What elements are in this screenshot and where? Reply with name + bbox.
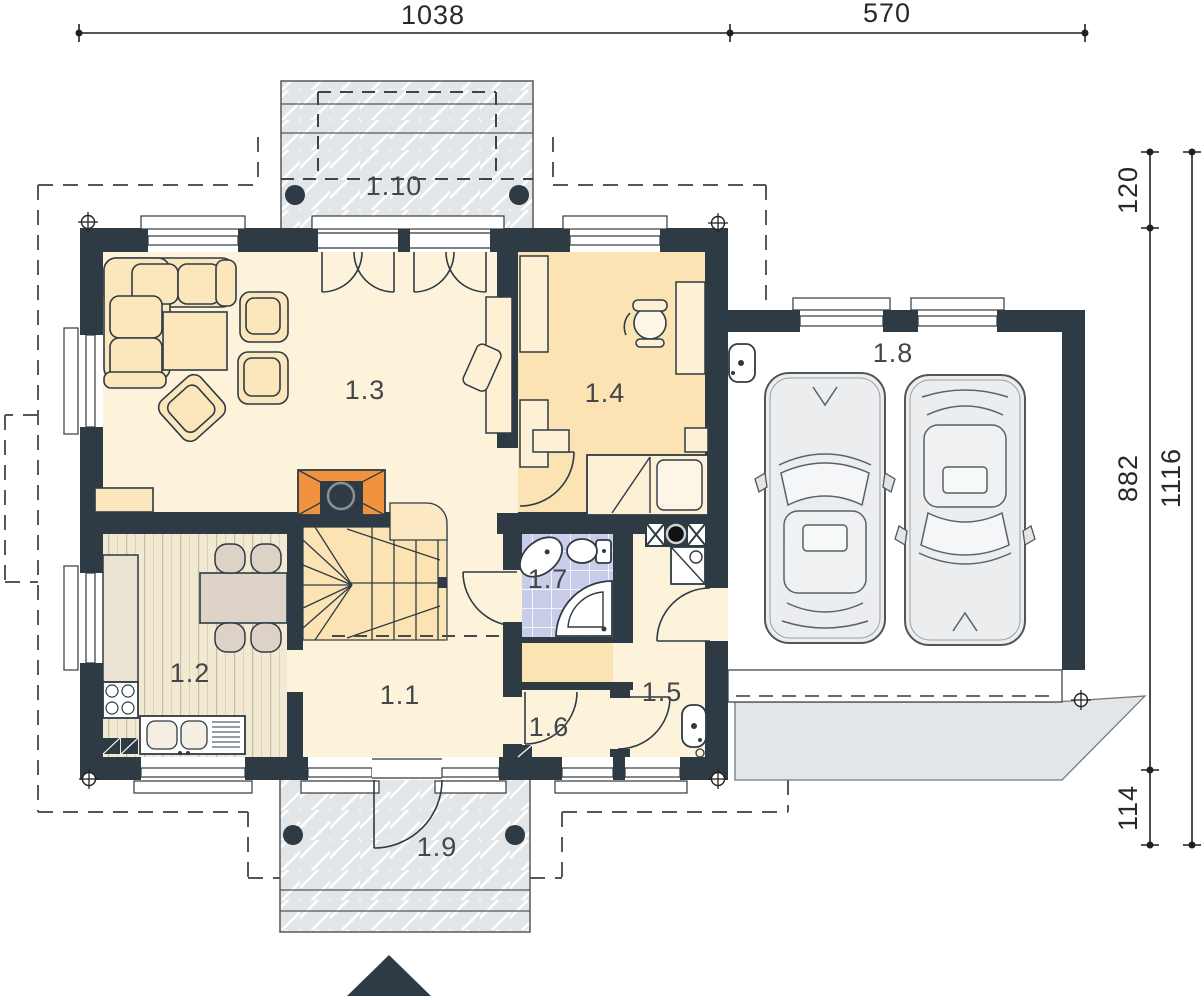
dim-top-1038: 1038 <box>401 0 465 30</box>
garage-washbasin <box>729 344 755 382</box>
floor-closet <box>522 643 613 682</box>
room-label-1-9: 1.9 <box>417 832 458 862</box>
armchair <box>238 352 288 404</box>
room-label-1-5: 1.5 <box>642 677 683 707</box>
porch-column <box>283 825 303 845</box>
dim-right-114: 114 <box>1113 785 1143 831</box>
garage-right-wall <box>1062 310 1085 670</box>
garage <box>728 298 1145 780</box>
chair <box>215 544 245 573</box>
terrace-column <box>509 185 529 205</box>
room-label-1-1: 1.1 <box>380 680 421 710</box>
floor-plan-page: 1.1 1.2 1.3 1.4 1.5 1.6 1.7 1.8 1.9 1.10… <box>0 0 1204 1000</box>
room-label-1-7: 1.7 <box>528 564 569 594</box>
terrace-top <box>281 81 533 239</box>
coffee-table <box>163 312 227 370</box>
car-right <box>895 375 1035 645</box>
sideboard <box>95 488 153 512</box>
room-label-1-4: 1.4 <box>585 378 626 408</box>
shelf <box>533 430 569 452</box>
floor-plan-drawing: 1.1 1.2 1.3 1.4 1.5 1.6 1.7 1.8 1.9 1.10… <box>0 0 1204 1000</box>
dining-table <box>200 573 287 623</box>
toilet <box>567 539 611 563</box>
dim-top-570: 570 <box>863 0 911 28</box>
room-label-1-10: 1.10 <box>366 171 423 201</box>
car-left <box>755 373 895 643</box>
dim-right-882: 882 <box>1113 454 1143 502</box>
room-label-1-8: 1.8 <box>873 338 914 368</box>
porch-column <box>505 825 525 845</box>
driveway <box>735 696 1145 780</box>
room-label-1-2: 1.2 <box>170 658 211 688</box>
armchair <box>240 292 288 342</box>
garage-door-threshold <box>728 670 1062 702</box>
chair <box>215 623 245 652</box>
stove <box>103 682 138 718</box>
water-heater <box>671 547 705 584</box>
bed <box>587 455 708 515</box>
terrace-column <box>285 185 305 205</box>
dim-right-120: 120 <box>1113 166 1143 214</box>
boiler <box>645 522 705 547</box>
porch-bottom <box>280 774 530 932</box>
dim-right-1116: 1116 <box>1156 448 1186 508</box>
kitchen-counter <box>103 555 138 682</box>
wardrobe <box>520 256 548 352</box>
chair <box>251 623 281 652</box>
room-label-1-3: 1.3 <box>345 375 386 405</box>
room-label-1-6: 1.6 <box>529 712 570 742</box>
north-arrow-icon <box>347 955 431 996</box>
bedroom-desk <box>676 282 705 374</box>
dimensions-right: 120 882 1116 114 <box>1113 149 1201 849</box>
dimensions-top: 1038 570 <box>76 0 1089 42</box>
garage-top-wall <box>728 310 1085 332</box>
chair <box>251 544 281 573</box>
fireplace <box>298 470 385 515</box>
nightstand <box>685 428 708 452</box>
kitchen-sink <box>140 716 245 755</box>
